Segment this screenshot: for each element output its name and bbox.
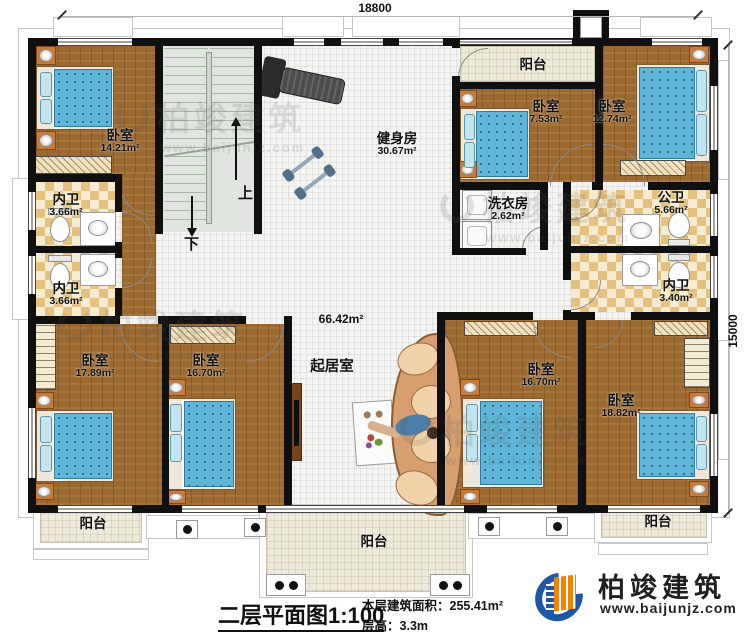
stair-label-up: 上: [238, 182, 253, 203]
wall-t3-bottom: [648, 182, 718, 190]
room-name: 卧室: [601, 393, 640, 408]
nightstand: [460, 379, 480, 396]
wall-stair-left: [155, 38, 163, 234]
stair-arrow-up-head: [231, 117, 241, 126]
room-area: 30.67m²: [377, 146, 418, 158]
window: [28, 256, 36, 294]
wardrobe: [34, 156, 112, 174]
wardrobe: [654, 321, 708, 336]
window: [58, 505, 132, 513]
room-area: 7.53m²: [529, 114, 562, 126]
bed-mattress: [639, 67, 695, 159]
window: [710, 256, 718, 298]
wall-bathr-left: [563, 310, 571, 320]
wall-t2t3-mid: [592, 182, 603, 190]
flower-icon: [366, 442, 372, 448]
window-sill: [640, 17, 712, 37]
window: [341, 38, 383, 46]
sink-basin: [88, 220, 108, 236]
room-name: 公卫: [654, 190, 687, 205]
nightstand: [166, 490, 186, 504]
wardrobe: [684, 338, 710, 388]
logo-building-orange: [554, 574, 576, 611]
plan-info: 本层建筑面积：255.41m² 层高：3.3m: [362, 596, 503, 635]
room-label-laundry: 洗衣房 2.62m²: [488, 196, 529, 223]
room-area: 66.42m²: [319, 313, 364, 326]
pillow: [170, 434, 182, 462]
pillow: [696, 444, 707, 470]
stair-label-down: 下: [184, 233, 199, 254]
wall-laundry-bottom: [452, 248, 526, 255]
wall-bedroomtl-bottom: [28, 174, 122, 182]
pillow: [40, 72, 52, 97]
wall-b3-b4: [578, 320, 586, 508]
column-dot: [275, 581, 284, 590]
window: [294, 38, 324, 46]
plan-title-text: 二层平面图: [218, 603, 328, 628]
window-sill: [282, 16, 344, 37]
pillow: [40, 416, 52, 443]
tv-icon: [294, 400, 299, 446]
pillow: [40, 445, 52, 472]
bed-mattress: [639, 413, 695, 477]
room-area: 5.66m²: [654, 205, 687, 217]
room-name: 内卫: [659, 278, 692, 293]
room-label-balcony-right: 阳台: [645, 514, 672, 529]
wardrobe: [464, 321, 538, 336]
room-label-balcony-left: 阳台: [80, 516, 107, 531]
sofa: [381, 333, 465, 516]
room-label-bedroom-tl: 卧室 14.21m²: [100, 128, 139, 155]
room-name: 阳台: [80, 516, 107, 531]
dimension-height: 15000: [726, 301, 740, 361]
nightstand: [36, 131, 56, 150]
wall-b34-top: [571, 312, 595, 320]
info-height-label: 层高：: [362, 619, 400, 633]
room-label-bath-l1: 内卫 3.66m²: [49, 192, 82, 219]
room-label-gym: 健身房 30.67m²: [377, 131, 418, 158]
wall-bedroomt2-left: [452, 76, 460, 188]
window: [399, 38, 443, 46]
room-label-bedroom-b4: 卧室 18.82m²: [601, 393, 640, 420]
pillow: [696, 70, 707, 112]
room-area: 3.66m²: [49, 207, 82, 219]
toilet: [50, 216, 70, 242]
wardrobe: [170, 326, 236, 344]
treadmill-belt: [278, 67, 346, 106]
info-area-line: 本层建筑面积：255.41m²: [362, 596, 503, 616]
window-door-balcony: [266, 505, 464, 513]
brand-logo-icon: [536, 568, 590, 624]
bed-mattress: [54, 413, 112, 479]
plan-title: 二层平面图1:100: [218, 598, 384, 630]
room-label-bedroom-b2: 卧室 16.70m²: [186, 353, 225, 380]
room-label-bedroom-t2: 卧室 7.53m²: [529, 99, 562, 126]
lamp-icon: [692, 484, 706, 494]
bed-mattress: [476, 111, 528, 177]
stair-arrow-down: [191, 196, 193, 230]
room-name: 阳台: [645, 514, 672, 529]
wall-bathr-divider: [563, 246, 718, 253]
wall-b1-top: [28, 316, 120, 324]
room-label-bath-r: 内卫 3.40m²: [659, 278, 692, 305]
pillow: [696, 114, 707, 156]
room-label-balcony-top: 阳台: [520, 57, 547, 72]
room-area: 2.62m²: [488, 211, 529, 223]
column-dot: [553, 522, 562, 531]
column-dot: [251, 523, 260, 532]
room-name: 卧室: [100, 128, 139, 143]
room-area: 3.40m²: [659, 293, 692, 305]
sink-basin: [88, 261, 108, 277]
wall-bath-right: [115, 242, 122, 258]
pillow: [466, 404, 478, 432]
column-dot: [453, 581, 462, 590]
wall-laundry-right: [540, 190, 548, 250]
room-area: 16.70m²: [186, 368, 225, 380]
wall-t2-bottom: [452, 182, 548, 190]
toilet-tank: [48, 255, 72, 262]
logo-building-blue: [546, 584, 554, 614]
wall-balconytr-left: [452, 38, 460, 48]
lamp-icon: [692, 49, 706, 60]
lamp-icon: [37, 395, 51, 406]
washer-drum: [467, 226, 487, 246]
room-name: 卧室: [186, 353, 225, 368]
dimension-line-top: [62, 16, 698, 17]
window: [182, 505, 258, 513]
bed-mattress: [54, 69, 112, 127]
window: [710, 194, 718, 236]
washing-machine-icon: [462, 221, 492, 251]
room-name: 卧室: [521, 362, 560, 377]
dimension-width: 18800: [345, 1, 405, 15]
nightstand: [460, 489, 480, 504]
stair-stringer: [206, 52, 212, 224]
room-label-bedroom-b3: 卧室 16.70m²: [521, 362, 560, 389]
room-area: 17.89m²: [75, 368, 114, 380]
window: [652, 38, 702, 46]
window: [710, 86, 718, 150]
wall-b2-living: [284, 316, 292, 506]
info-area-label: 本层建筑面积：: [362, 599, 450, 613]
lamp-icon: [463, 492, 477, 501]
wall-bath-right: [115, 182, 122, 212]
room-label-balcony-center: 阳台: [361, 534, 388, 549]
window-sill: [352, 16, 460, 37]
toilet-tank: [668, 254, 690, 261]
wall-laundry-left: [452, 188, 460, 250]
pillow: [40, 99, 52, 124]
pillow: [464, 114, 475, 140]
bed-mattress: [184, 401, 234, 487]
nightstand: [166, 379, 186, 396]
lamp-icon: [169, 493, 183, 501]
window: [28, 408, 36, 478]
stair-arrow-up: [235, 125, 237, 180]
room-area: 16.70m²: [521, 377, 560, 389]
room-label-bedroom-t3: 卧室 12.74m²: [592, 99, 631, 126]
info-area-value: 255.41m²: [450, 599, 504, 613]
balcony-left-step: [33, 549, 149, 560]
column-pad: [244, 518, 266, 537]
brand-url: www.baijunjz.com: [600, 600, 737, 616]
wall-b4-top: [631, 312, 718, 320]
wall-baths-divider: [28, 246, 118, 253]
info-height-line: 层高：3.3m: [362, 616, 503, 635]
wall-balconytr-bottom: [452, 82, 602, 89]
pillow: [466, 434, 478, 462]
pillow: [464, 142, 475, 168]
room-name: 内卫: [49, 281, 82, 296]
room-area: 3.66m²: [49, 296, 82, 308]
column-pad: [478, 517, 500, 536]
washer-drum: [467, 195, 487, 215]
lamp-icon: [39, 134, 53, 147]
room-label-living-area: 66.42m²: [319, 313, 364, 326]
nightstand: [34, 483, 54, 500]
room-label-bath-public: 公卫 5.66m²: [654, 190, 687, 217]
toilet-tank: [668, 239, 690, 246]
window: [487, 505, 557, 513]
window: [58, 38, 132, 46]
balcony-right-step: [598, 543, 708, 555]
stair-steps: [164, 48, 208, 226]
room-name: 内卫: [49, 192, 82, 207]
lamp-icon: [692, 395, 706, 405]
nightstand: [689, 392, 709, 408]
room-name: 卧室: [529, 99, 562, 114]
column-dot: [183, 525, 192, 534]
nightstand: [36, 46, 56, 65]
lamp-icon: [461, 93, 474, 104]
room-name: 健身房: [377, 131, 418, 146]
pillow: [696, 416, 707, 442]
info-height-value: 3.3m: [400, 619, 429, 633]
floor-plan-canvas: 18800 15000: [0, 0, 750, 635]
wall-b3-top: [437, 312, 533, 320]
room-name: 起居室: [310, 359, 354, 375]
column-dot: [289, 581, 298, 590]
flower-icon: [367, 434, 374, 441]
nightstand: [689, 46, 709, 63]
column-pad: [546, 517, 568, 536]
room-name: 卧室: [592, 99, 631, 114]
wall-stair-right: [254, 38, 262, 234]
sink-basin: [630, 222, 652, 239]
sink-basin: [630, 261, 650, 277]
wall-b1-b2: [162, 324, 169, 505]
room-label-living: 起居室: [310, 359, 354, 375]
room-name: 阳台: [361, 534, 388, 549]
column-pad: [430, 574, 470, 596]
chimney-interior: [580, 17, 602, 38]
room-name: 洗衣房: [488, 196, 529, 211]
room-label-bath-l2: 内卫 3.66m²: [49, 281, 82, 308]
wall-b3-left: [437, 312, 445, 513]
lamp-icon: [37, 486, 51, 497]
brand-block: 柏竣建筑 www.baijunjz.com: [536, 566, 746, 626]
dimension-line-right: [728, 46, 729, 514]
wall-b2-top: [158, 316, 246, 324]
cup-icon: [363, 411, 370, 418]
nightstand: [34, 392, 54, 409]
nightstand: [689, 481, 709, 497]
room-area: 12.74m²: [592, 114, 631, 126]
balcony-rail: [460, 39, 572, 45]
nightstand: [458, 90, 477, 107]
pillow: [170, 404, 182, 432]
stair-steps: [210, 48, 254, 144]
lamp-icon: [39, 49, 53, 62]
bed-mattress: [480, 401, 542, 485]
room-area: 14.21m²: [100, 143, 139, 155]
wall-bathr-left: [563, 182, 571, 280]
room-label-bedroom-b1: 卧室 17.89m²: [75, 353, 114, 380]
room-name: 阳台: [520, 57, 547, 72]
window: [28, 192, 36, 230]
column-dot: [485, 522, 494, 531]
window: [608, 505, 700, 513]
lamp-icon: [169, 382, 183, 393]
room-name: 卧室: [75, 353, 114, 368]
column-dot: [439, 581, 448, 590]
column-pad: [176, 520, 198, 539]
window-sill: [53, 17, 133, 37]
wall-bath-right: [115, 288, 122, 316]
room-area: 18.82m²: [601, 408, 640, 420]
window: [710, 414, 718, 476]
lamp-icon: [463, 382, 477, 393]
column-pad: [266, 574, 306, 596]
